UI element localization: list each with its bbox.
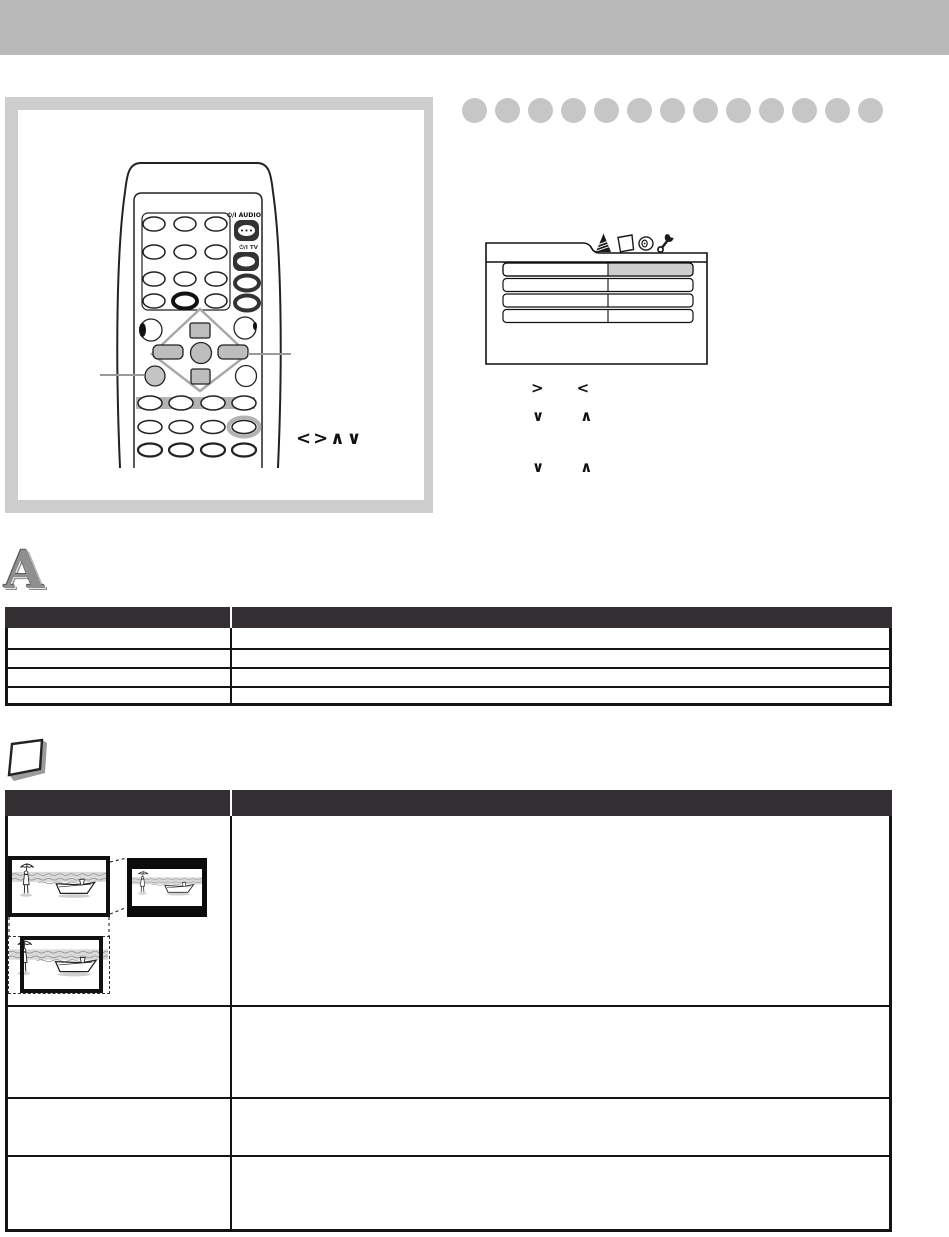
cursor-buttons-label: <>∧∨ [296, 428, 363, 449]
bullet-dot [462, 98, 487, 123]
table-cell [8, 628, 232, 648]
table-cell [232, 669, 889, 686]
table-cell [232, 688, 889, 703]
bullet-dot [726, 98, 751, 123]
table-cell [8, 1099, 232, 1155]
remote-control-illustration: ⏻/I AUDIO ⏻/I TV [5, 97, 433, 513]
table-header-description [232, 790, 892, 816]
instruction-arrows-2: ∨ ∧ [532, 407, 592, 425]
setup-tab-icon [658, 234, 674, 252]
table-header-row [5, 790, 892, 816]
power-tv-label: ⏻/I TV [239, 244, 258, 251]
setup-menu-illustration [485, 230, 708, 365]
nav-down-button [191, 369, 210, 384]
table-row [8, 648, 889, 667]
audio-tab-icon [639, 237, 653, 250]
up-arrow-glyph: ∧ [580, 407, 592, 425]
manual-page: ⏻/I AUDIO ⏻/I TV [0, 0, 949, 1237]
language-section-dropcap: A [4, 545, 44, 597]
instruction-arrows-3: ∨ ∧ [532, 458, 592, 476]
nav-enter-button [191, 343, 212, 364]
language-settings-table [5, 607, 892, 706]
display-tab-icon [618, 235, 634, 252]
table-cell [8, 688, 232, 703]
right-arrow-glyph: > [531, 379, 544, 397]
instruction-arrows-1: > < [531, 379, 589, 397]
picture-pan-scan [8, 936, 110, 994]
table-header-item [5, 790, 232, 816]
table-cell [8, 1157, 232, 1229]
remote-illustration-panel: ⏻/I AUDIO ⏻/I TV [5, 97, 433, 513]
page-header-bar [0, 0, 949, 55]
table-cell [232, 650, 889, 667]
menu-row-1 [503, 263, 693, 276]
table-header-item [5, 607, 232, 628]
power-audio-label: ⏻/I AUDIO [227, 212, 261, 219]
menu-row-4 [503, 310, 693, 323]
setup-button [145, 366, 165, 386]
table-cell [232, 816, 889, 1005]
picture-letterbox [127, 858, 207, 917]
aspect-ratio-pictures-cell [8, 816, 232, 1005]
table-row [8, 628, 889, 648]
table-row [8, 686, 889, 703]
pan-scan-crop-frame [20, 936, 103, 993]
corner-button-top-right [234, 317, 256, 339]
bullet-dot [561, 98, 586, 123]
left-arrow-glyph: < [577, 379, 590, 397]
table-cell [8, 1007, 232, 1097]
corner-button-bottom-right [236, 366, 257, 387]
bullet-dot [693, 98, 718, 123]
bullet-dot-row [462, 98, 883, 123]
table-row [8, 1005, 889, 1097]
table-body [5, 628, 892, 706]
side-button-2 [235, 296, 259, 311]
menu-selected-value [608, 264, 692, 276]
table-cell [8, 650, 232, 667]
display-settings-table [5, 790, 892, 1232]
down-arrow-glyph: ∨ [532, 407, 544, 425]
bullet-dot [825, 98, 850, 123]
screen-section-icon [4, 737, 54, 785]
bullet-dot [627, 98, 652, 123]
table-cell [8, 669, 232, 686]
side-button-1 [235, 276, 259, 291]
bullet-dot [594, 98, 619, 123]
table-row [8, 1097, 889, 1155]
table-cell [232, 1157, 889, 1229]
menu-row-2 [503, 279, 693, 292]
table-row [8, 816, 889, 1005]
bullet-dot [858, 98, 883, 123]
table-row [8, 1155, 889, 1229]
table-header-row [5, 607, 892, 628]
bullet-dot [660, 98, 685, 123]
table-cell [232, 1007, 889, 1097]
picture-full-frame [8, 856, 110, 917]
bullet-dot [495, 98, 520, 123]
dashed-connector-vertical [8, 917, 111, 936]
bullet-dot [792, 98, 817, 123]
bullet-dot [759, 98, 784, 123]
bullet-dot [528, 98, 553, 123]
nav-left-button [153, 345, 183, 359]
highlighted-digit-button [173, 294, 197, 309]
table-cell [232, 1099, 889, 1155]
up-arrow-glyph: ∧ [580, 458, 592, 476]
menu-row-3 [503, 294, 693, 307]
table-cell [232, 628, 889, 648]
table-header-description [232, 607, 892, 628]
table-body [5, 816, 892, 1232]
power-tv-button [233, 252, 259, 271]
nav-right-button [218, 345, 248, 359]
table-row [8, 667, 889, 686]
language-tab-icon [596, 234, 611, 253]
power-audio-button [234, 220, 259, 241]
nav-up-button [190, 323, 210, 338]
down-arrow-glyph: ∨ [532, 458, 544, 476]
